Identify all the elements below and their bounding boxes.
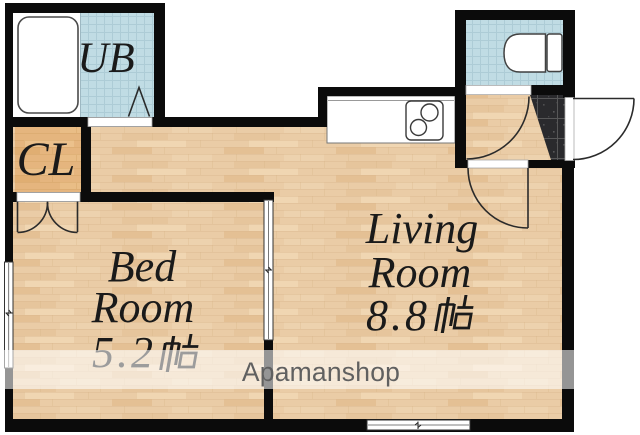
svg-text:Room: Room [91, 283, 195, 332]
svg-text:8.8: 8.8 [366, 291, 430, 340]
svg-text:CL: CL [17, 133, 76, 186]
svg-text:Apamanshop: Apamanshop [242, 357, 400, 387]
svg-text:Living: Living [365, 204, 478, 253]
svg-text:UB: UB [77, 35, 134, 82]
svg-text:Room: Room [368, 248, 472, 297]
